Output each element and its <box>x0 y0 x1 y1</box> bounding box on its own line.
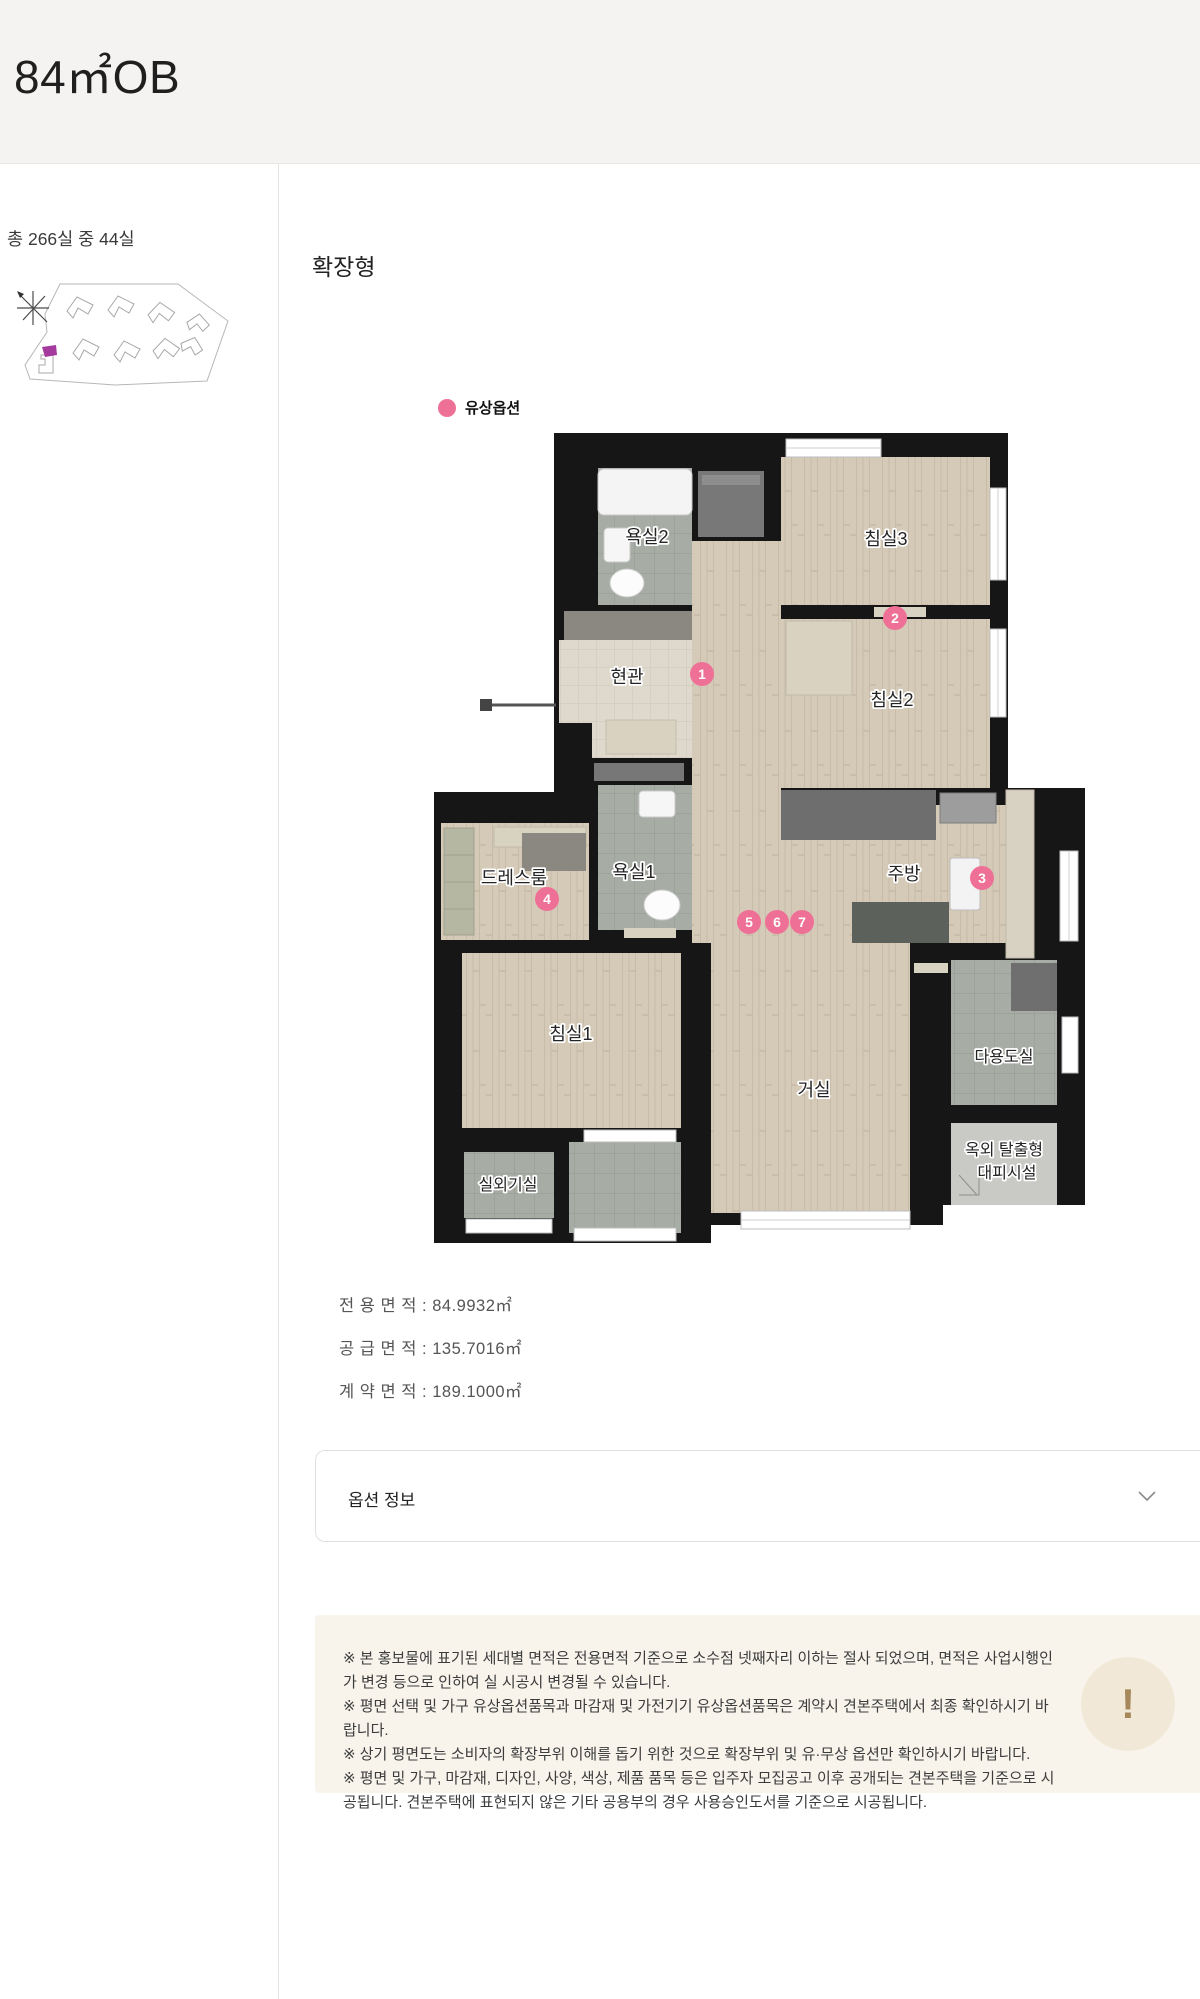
utility-door <box>1062 1017 1078 1073</box>
page-header: 84㎡OB <box>0 0 1200 164</box>
room-label-utility: 다용도실 <box>975 1048 1034 1066</box>
option-badge-1: 1 <box>690 662 714 686</box>
room-label-escape-1: 옥외 탈출형 <box>965 1141 1043 1159</box>
svg-text:2: 2 <box>891 610 899 626</box>
notice-item: ※ 평면 선택 및 가구 유상옵션품목과 마감재 및 가전기기 유상옵션품목은 … <box>343 1695 1055 1743</box>
room-label-dress: 드레스룸 <box>481 868 547 888</box>
bed2-furniture <box>786 621 852 695</box>
option-badge-6: 6 <box>765 910 789 934</box>
svg-text:1: 1 <box>698 666 706 682</box>
notice-box: ※ 본 홍보물에 표기된 세대별 면적은 전용면적 기준으로 소수점 넷째자리 … <box>315 1615 1200 1793</box>
svg-text:3: 3 <box>978 870 986 886</box>
room-label-acroom: 실외기실 <box>479 1176 538 1194</box>
exclamation-icon: ! <box>1081 1657 1175 1751</box>
page-title: 84㎡OB <box>14 48 180 106</box>
svg-text:5: 5 <box>745 914 753 930</box>
option-badge-5: 5 <box>737 910 761 934</box>
area-info: 전 용 면 적 : 84.9932㎡ 공 급 면 적 : 135.7016㎡ 계… <box>339 1292 522 1421</box>
room-label-bed3: 침실3 <box>864 529 907 549</box>
utility-closet <box>1011 963 1057 1011</box>
site-boundary <box>25 284 228 385</box>
option-badge-2: 2 <box>883 606 907 630</box>
availability-text: 총 266실 중 44실 <box>7 226 135 251</box>
room-label-bed1: 침실1 <box>549 1024 592 1044</box>
window-right-kitchen <box>1060 851 1078 941</box>
room-label-entrance: 현관 <box>610 667 643 687</box>
paid-option-label: 유상옵션 <box>465 397 520 418</box>
room-label-bath2: 욕실2 <box>625 527 668 547</box>
toilet <box>610 569 644 597</box>
bath1-sink <box>639 791 675 817</box>
shoe-cabinet <box>564 611 692 640</box>
window-right-bed2 <box>990 629 1006 717</box>
option-badge-7: 7 <box>790 910 814 934</box>
site-location-map <box>15 281 243 391</box>
option-badge-4: 4 <box>535 887 559 911</box>
building-footprints <box>39 296 212 373</box>
notice-item: ※ 상기 평면도는 소비자의 확장부위 이해를 돕기 위한 것으로 확장부위 및… <box>343 1743 1055 1767</box>
option-badge-3: 3 <box>970 866 994 890</box>
room-escape-floor <box>951 1123 1057 1205</box>
window-right-bed3 <box>990 488 1006 580</box>
notice-item: ※ 본 홍보물에 표기된 세대별 면적은 전용면적 기준으로 소수점 넷째자리 … <box>343 1647 1055 1695</box>
option-info-label: 옵션 정보 <box>348 1486 415 1511</box>
window-living <box>741 1211 910 1229</box>
bath1-toilet <box>644 890 680 920</box>
storage-rug <box>606 720 676 754</box>
paid-option-legend: 유상옵션 <box>438 397 520 418</box>
kitchen-cabinet-right <box>1006 790 1034 958</box>
kitchen-counter <box>781 790 936 840</box>
floorplan-image: 욕실2 침실3 현관 침실2 드레스룸 욕실1 주방 침실1 거실 다용도실 실… <box>434 433 1085 1243</box>
chevron-down-icon <box>1138 1491 1156 1502</box>
plan-type-heading: 확장형 <box>312 248 375 282</box>
room-label-living: 거실 <box>797 1080 830 1100</box>
storage-cabinet <box>594 763 684 781</box>
balcony-floor <box>569 1142 681 1233</box>
entry-door-mark <box>480 699 556 711</box>
svg-text:6: 6 <box>773 914 781 930</box>
area-exclusive: 전 용 면 적 : 84.9932㎡ <box>339 1292 522 1335</box>
area-contract: 계 약 면 적 : 189.1000㎡ <box>339 1378 522 1421</box>
bathtub <box>598 469 692 515</box>
compass-icon <box>17 291 49 325</box>
kitchen-stove <box>940 793 996 823</box>
room-label-escape-2: 대피시설 <box>978 1164 1037 1182</box>
area-supply: 공 급 면 적 : 135.7016㎡ <box>339 1335 522 1378</box>
kitchen-island <box>852 902 949 943</box>
notice-item: ※ 평면 및 가구, 마감재, 디자인, 사양, 색상, 제품 품목 등은 입주… <box>343 1767 1055 1815</box>
notice-list: ※ 본 홍보물에 표기된 세대별 면적은 전용면적 기준으로 소수점 넷째자리 … <box>315 1615 1200 1815</box>
window-top <box>786 439 881 457</box>
room-label-kitchen: 주방 <box>887 864 920 884</box>
svg-text:4: 4 <box>543 891 551 907</box>
room-label-bed2: 침실2 <box>870 690 913 710</box>
option-info-accordion[interactable]: 옵션 정보 <box>315 1450 1200 1542</box>
sidebar: 총 266실 중 44실 <box>0 164 279 1999</box>
svg-text:7: 7 <box>798 914 806 930</box>
paid-option-dot-icon <box>438 399 456 417</box>
room-label-bath1: 욕실1 <box>612 862 655 882</box>
